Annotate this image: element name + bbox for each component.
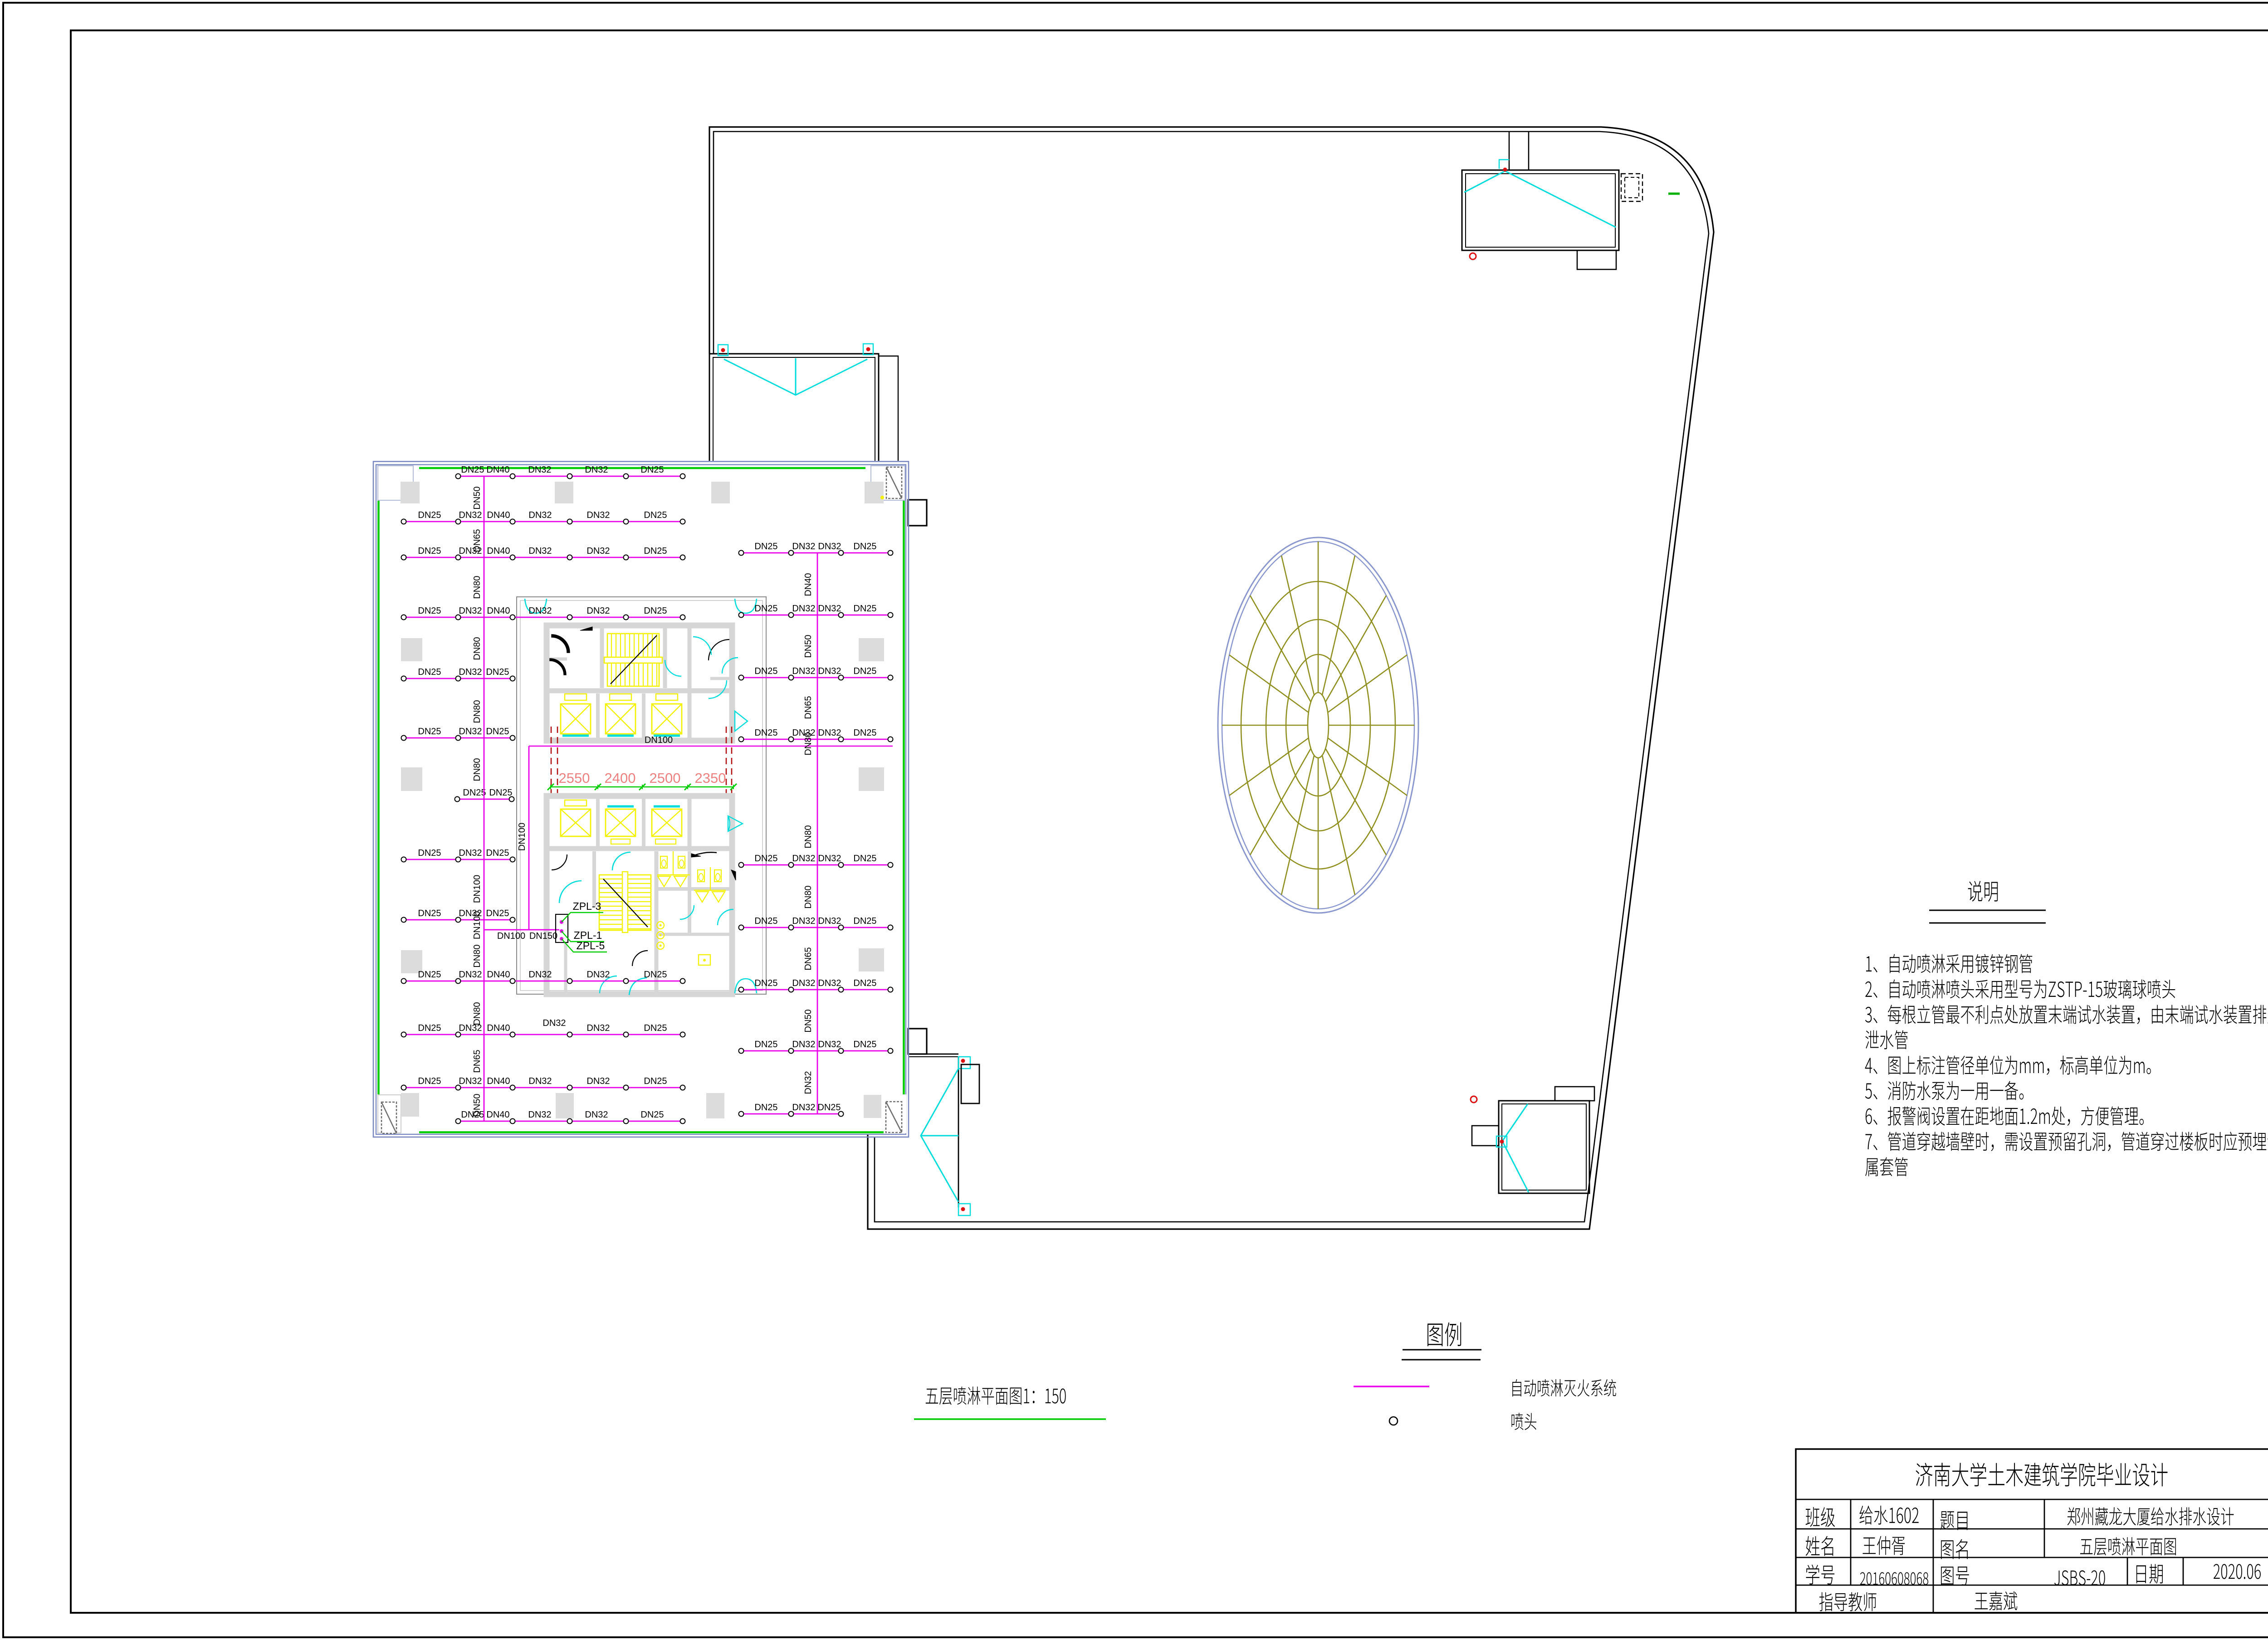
svg-text:DN25: DN25 — [489, 788, 512, 798]
svg-text:DN25: DN25 — [853, 666, 876, 676]
svg-text:DN25: DN25 — [640, 1110, 664, 1120]
svg-text:DN25: DN25 — [418, 510, 441, 520]
svg-text:DN80: DN80 — [803, 732, 813, 755]
svg-text:DN32: DN32 — [818, 854, 841, 864]
svg-text:DN25: DN25 — [853, 1040, 876, 1049]
svg-text:DN25: DN25 — [418, 908, 441, 918]
svg-text:DN40: DN40 — [487, 510, 510, 520]
svg-text:DN32: DN32 — [528, 465, 551, 475]
svg-text:DN65: DN65 — [472, 529, 482, 552]
svg-text:DN25: DN25 — [486, 848, 509, 858]
svg-text:DN32: DN32 — [587, 546, 610, 556]
svg-text:DN80: DN80 — [472, 637, 482, 660]
svg-text:DN32: DN32 — [459, 606, 482, 616]
svg-text:DN25: DN25 — [853, 978, 876, 988]
svg-text:DN100: DN100 — [517, 823, 527, 851]
svg-text:DN32: DN32 — [818, 728, 841, 738]
svg-text:DN25: DN25 — [461, 465, 484, 475]
svg-text:DN32: DN32 — [543, 1018, 566, 1028]
svg-text:DN25: DN25 — [418, 667, 441, 677]
svg-text:DN25: DN25 — [486, 908, 509, 918]
svg-text:DN25: DN25 — [754, 604, 777, 614]
svg-text:DN25: DN25 — [418, 970, 441, 980]
svg-text:DN40: DN40 — [487, 606, 510, 616]
svg-text:DN32: DN32 — [818, 604, 841, 614]
svg-text:DN65: DN65 — [803, 947, 813, 970]
svg-text:DN32: DN32 — [587, 1023, 610, 1033]
svg-text:ZPL-3: ZPL-3 — [573, 900, 601, 912]
svg-text:DN80: DN80 — [472, 944, 482, 967]
svg-text:DN32: DN32 — [818, 666, 841, 676]
svg-text:DN32: DN32 — [792, 916, 815, 926]
svg-text:DN100: DN100 — [472, 911, 482, 939]
svg-text:DN32: DN32 — [792, 1040, 815, 1049]
svg-text:DN80: DN80 — [472, 576, 482, 599]
svg-text:DN25: DN25 — [754, 916, 777, 926]
svg-text:DN25: DN25 — [754, 542, 777, 552]
svg-text:DN32: DN32 — [792, 1103, 815, 1113]
svg-text:DN25: DN25 — [853, 916, 876, 926]
svg-text:DN100: DN100 — [497, 931, 525, 941]
svg-text:DN32: DN32 — [803, 1071, 813, 1094]
svg-text:2400: 2400 — [605, 770, 636, 786]
svg-text:DN25: DN25 — [817, 1103, 841, 1113]
svg-text:DN32: DN32 — [818, 542, 841, 552]
svg-text:DN25: DN25 — [644, 510, 667, 520]
svg-text:DN32: DN32 — [818, 978, 841, 988]
svg-text:DN25: DN25 — [644, 1023, 667, 1033]
svg-text:DN25: DN25 — [418, 848, 441, 858]
svg-text:DN32: DN32 — [528, 970, 552, 980]
svg-text:DN25: DN25 — [640, 465, 664, 475]
svg-text:DN25: DN25 — [418, 1076, 441, 1086]
svg-text:DN32: DN32 — [585, 1110, 608, 1120]
svg-text:DN65: DN65 — [472, 1049, 482, 1073]
svg-text:DN25: DN25 — [754, 1040, 777, 1049]
svg-text:DN32: DN32 — [459, 970, 482, 980]
svg-text:DN40: DN40 — [486, 465, 509, 475]
svg-text:DN32: DN32 — [818, 916, 841, 926]
svg-text:DN40: DN40 — [487, 970, 510, 980]
svg-text:DN25: DN25 — [418, 727, 441, 737]
svg-text:DN32: DN32 — [459, 727, 482, 737]
svg-text:DN25: DN25 — [486, 667, 509, 677]
svg-text:DN50: DN50 — [472, 1093, 482, 1117]
svg-text:DN40: DN40 — [486, 1110, 509, 1120]
svg-text:DN25: DN25 — [853, 728, 876, 738]
svg-text:DN25: DN25 — [418, 1023, 441, 1033]
svg-text:DN25: DN25 — [486, 727, 509, 737]
svg-text:DN32: DN32 — [792, 604, 815, 614]
svg-text:2500: 2500 — [650, 770, 681, 786]
svg-text:DN32: DN32 — [528, 1110, 551, 1120]
svg-text:DN32: DN32 — [528, 1076, 552, 1086]
svg-text:DN32: DN32 — [587, 1076, 610, 1086]
svg-text:DN50: DN50 — [803, 1009, 813, 1032]
svg-text:DN25: DN25 — [644, 1076, 667, 1086]
svg-text:DN25: DN25 — [754, 1103, 777, 1113]
svg-text:DN32: DN32 — [818, 1040, 841, 1049]
svg-text:DN32: DN32 — [459, 848, 482, 858]
svg-text:DN80: DN80 — [803, 885, 813, 908]
svg-text:DN25: DN25 — [463, 788, 486, 798]
svg-text:DN50: DN50 — [472, 486, 482, 509]
svg-text:DN32: DN32 — [792, 542, 815, 552]
svg-text:DN25: DN25 — [644, 606, 667, 616]
svg-text:2350: 2350 — [695, 770, 726, 786]
svg-text:DN25: DN25 — [644, 546, 667, 556]
svg-text:DN32: DN32 — [587, 510, 610, 520]
svg-text:DN65: DN65 — [803, 696, 813, 719]
svg-text:DN32: DN32 — [585, 465, 608, 475]
svg-text:DN25: DN25 — [644, 970, 667, 980]
svg-text:ZPL-5: ZPL-5 — [577, 940, 605, 952]
svg-text:DN25: DN25 — [853, 604, 876, 614]
svg-text:DN32: DN32 — [792, 666, 815, 676]
svg-text:DN32: DN32 — [528, 546, 552, 556]
svg-text:DN100: DN100 — [472, 875, 482, 903]
svg-text:DN32: DN32 — [792, 854, 815, 864]
svg-text:DN80: DN80 — [472, 700, 482, 723]
svg-text:DN80: DN80 — [472, 1002, 482, 1025]
svg-text:DN25: DN25 — [754, 728, 777, 738]
svg-text:DN50: DN50 — [803, 635, 813, 658]
svg-text:DN25: DN25 — [853, 542, 876, 552]
svg-text:DN32: DN32 — [792, 978, 815, 988]
svg-text:DN25: DN25 — [754, 978, 777, 988]
svg-text:DN40: DN40 — [803, 573, 813, 596]
svg-text:DN80: DN80 — [472, 758, 482, 781]
svg-text:DN32: DN32 — [459, 1076, 482, 1086]
svg-text:DN32: DN32 — [587, 606, 610, 616]
svg-text:DN150: DN150 — [529, 931, 557, 941]
svg-text:2550: 2550 — [559, 770, 590, 786]
svg-text:DN25: DN25 — [754, 854, 777, 864]
svg-text:DN80: DN80 — [803, 825, 813, 848]
svg-text:DN100: DN100 — [645, 735, 673, 745]
svg-text:DN40: DN40 — [487, 1076, 510, 1086]
svg-text:DN25: DN25 — [853, 854, 876, 864]
svg-text:DN32: DN32 — [587, 970, 610, 980]
svg-text:DN40: DN40 — [487, 1023, 510, 1033]
svg-text:DN32: DN32 — [528, 510, 552, 520]
svg-text:DN25: DN25 — [418, 546, 441, 556]
svg-text:DN40: DN40 — [487, 546, 510, 556]
svg-text:DN25: DN25 — [754, 666, 777, 676]
svg-text:DN32: DN32 — [459, 667, 482, 677]
svg-text:DN32: DN32 — [528, 606, 552, 616]
svg-text:DN25: DN25 — [418, 606, 441, 616]
svg-text:DN32: DN32 — [459, 510, 482, 520]
